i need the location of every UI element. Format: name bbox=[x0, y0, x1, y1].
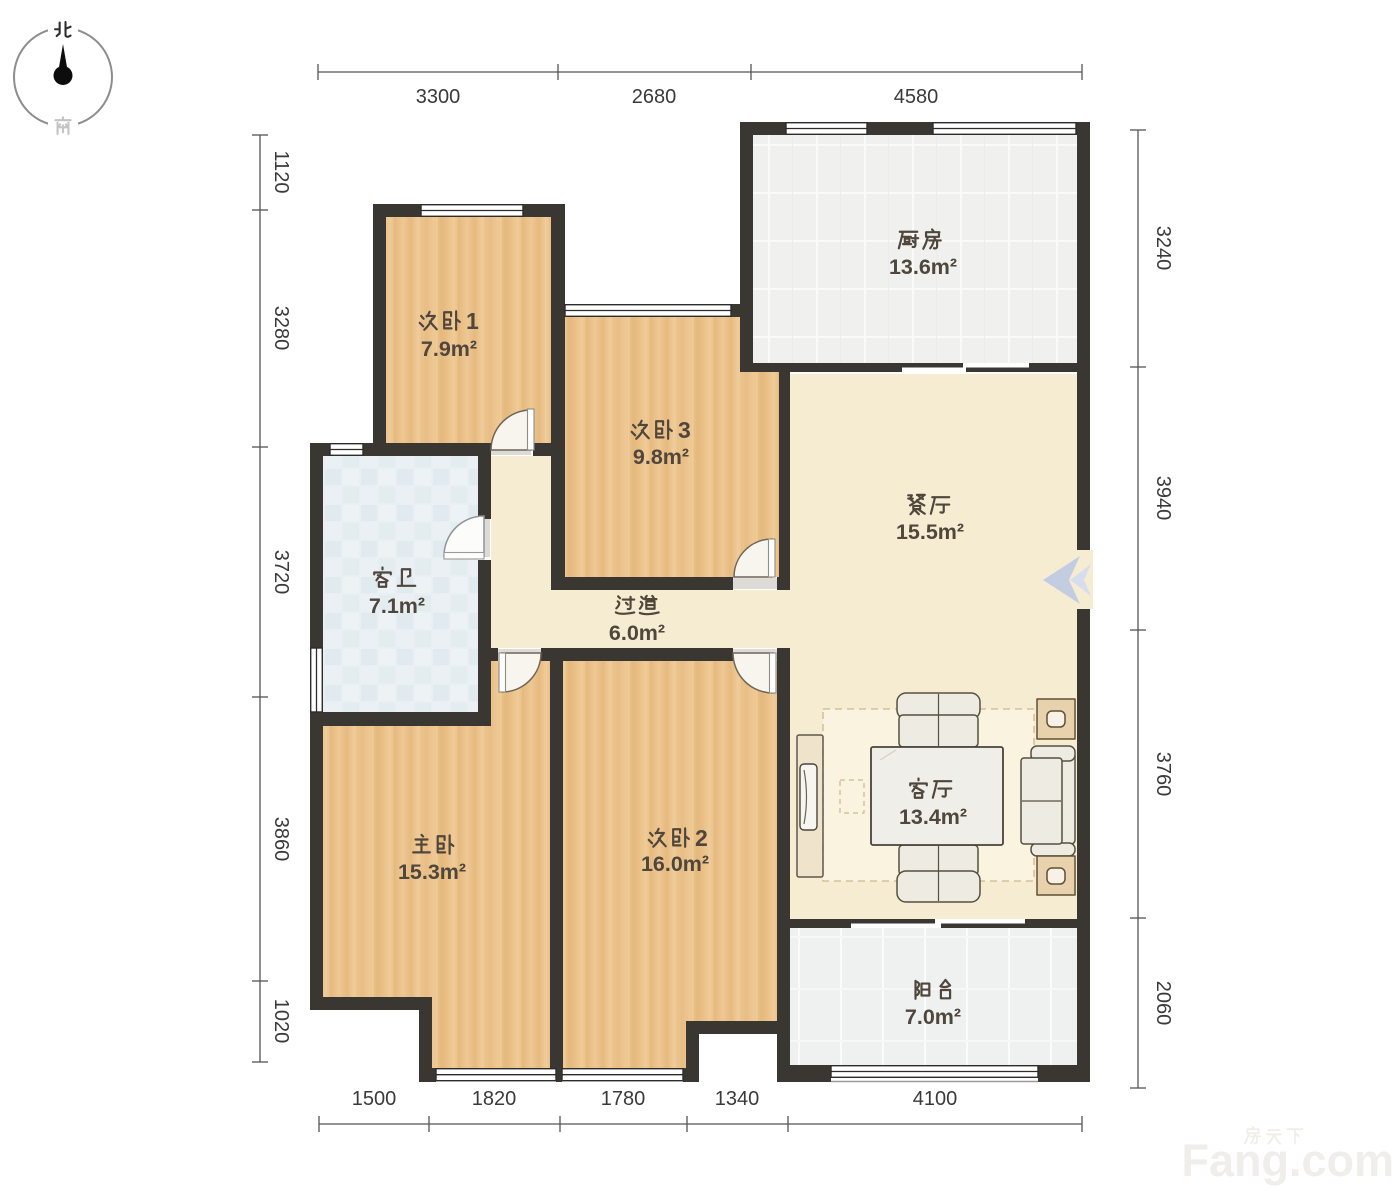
svg-text:16.0m²: 16.0m² bbox=[641, 852, 709, 876]
svg-text:1500: 1500 bbox=[352, 1088, 397, 1110]
svg-text:2: 2 bbox=[695, 825, 708, 851]
svg-text:7.9m²: 7.9m² bbox=[421, 337, 477, 361]
svg-text:4580: 4580 bbox=[894, 86, 939, 108]
svg-text:Fang.com: Fang.com bbox=[1181, 1135, 1394, 1186]
svg-text:6.0m²: 6.0m² bbox=[609, 621, 665, 645]
svg-text:4100: 4100 bbox=[913, 1088, 958, 1110]
svg-text:1780: 1780 bbox=[601, 1088, 646, 1110]
svg-text:1: 1 bbox=[466, 308, 479, 334]
svg-text:3720: 3720 bbox=[270, 550, 292, 595]
svg-text:15.5m²: 15.5m² bbox=[896, 520, 964, 544]
svg-text:2060: 2060 bbox=[1152, 981, 1174, 1026]
svg-text:13.6m²: 13.6m² bbox=[889, 255, 957, 279]
svg-text:13.4m²: 13.4m² bbox=[899, 805, 967, 829]
svg-text:1020: 1020 bbox=[270, 999, 292, 1044]
svg-text:7.1m²: 7.1m² bbox=[369, 594, 425, 618]
svg-text:3280: 3280 bbox=[270, 306, 292, 351]
svg-text:15.3m²: 15.3m² bbox=[398, 860, 466, 884]
svg-text:7.0m²: 7.0m² bbox=[905, 1005, 961, 1029]
svg-text:9.8m²: 9.8m² bbox=[633, 445, 689, 469]
svg-text:3240: 3240 bbox=[1152, 226, 1174, 271]
svg-text:2680: 2680 bbox=[632, 86, 677, 108]
svg-text:1820: 1820 bbox=[472, 1088, 517, 1110]
svg-text:1340: 1340 bbox=[715, 1088, 760, 1110]
svg-text:3940: 3940 bbox=[1152, 476, 1174, 521]
svg-text:1120: 1120 bbox=[270, 150, 292, 193]
svg-text:3860: 3860 bbox=[270, 817, 292, 862]
svg-text:3: 3 bbox=[678, 417, 691, 443]
svg-text:3760: 3760 bbox=[1152, 752, 1174, 797]
svg-text:3300: 3300 bbox=[416, 86, 461, 108]
